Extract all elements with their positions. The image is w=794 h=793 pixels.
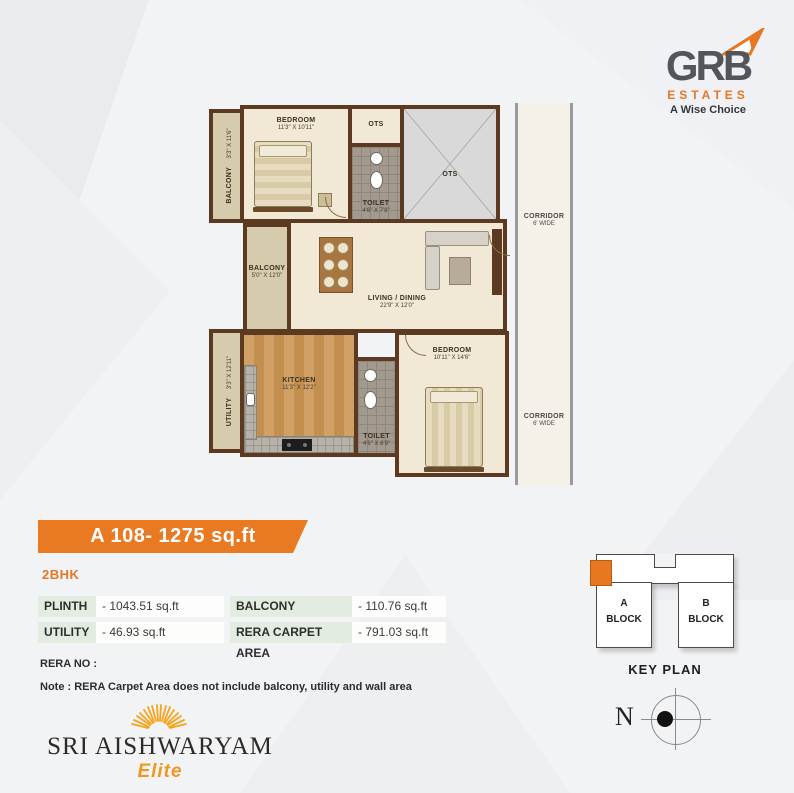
block-letter: B — [678, 596, 734, 612]
bed-icon — [254, 141, 312, 207]
brand-sub: ESTATES — [648, 88, 768, 102]
table-value: - 46.93 sq.ft — [96, 622, 224, 643]
room-living-dining: LIVING / DINING 22'9" X 12'0" — [287, 219, 507, 333]
room-label: TOILET 4'6" X 7'8" — [352, 200, 400, 214]
brand-tagline: A Wise Choice — [648, 104, 768, 116]
project-logo: SRI AISHWARYAM Elite — [35, 703, 285, 787]
shaft-cross-icon — [404, 109, 496, 219]
pillow-icon — [430, 391, 478, 403]
table-label: RERA CARPET AREA — [230, 622, 352, 643]
toilet-wc-icon — [370, 171, 383, 189]
room-bedroom-2: BEDROOM 10'11" X 14'6" — [395, 331, 509, 477]
sofa-icon — [425, 246, 440, 290]
table-value: - 110.76 sq.ft — [352, 596, 446, 617]
room-label: BALCONY 3'3" X 11'6" — [218, 128, 236, 203]
sink-icon — [370, 152, 383, 165]
project-edition: Elite — [35, 761, 285, 783]
bed-foot-icon — [424, 467, 484, 472]
room-corridor: CORRIDOR 6' WIDE CORRIDOR 6' WIDE — [515, 103, 573, 485]
table-value: - 1043.51 sq.ft — [96, 596, 224, 617]
room-utility: UTILITY 3'3" X 12'11" — [209, 329, 244, 453]
floor-plan: BALCONY 3'3" X 11'6" BEDROOM 11'3" X 10'… — [175, 85, 620, 495]
room-toilet-2: TOILET 4'6" X 8'9" — [354, 357, 399, 457]
keyplan-block-b-label: B BLOCK — [678, 596, 734, 628]
compass: N — [615, 692, 725, 756]
pillow-icon — [259, 145, 307, 157]
compass-dot-icon — [657, 711, 673, 727]
room-label: BALCONY 5'0" X 12'0" — [247, 265, 287, 279]
table-label: PLINTH — [38, 596, 96, 617]
room-label: LIVING / DINING 22'9" X 12'0" — [291, 295, 503, 309]
room-ots-small: OTS — [348, 105, 404, 147]
coffee-table-icon — [449, 257, 471, 285]
room-toilet-1: TOILET 4'6" X 7'8" — [348, 143, 404, 223]
chair-icon — [323, 276, 335, 288]
table-label: BALCONY — [230, 596, 352, 617]
room-label: BEDROOM 11'3" X 10'11" — [244, 117, 348, 131]
north-label: N — [615, 702, 634, 732]
table-value: - 791.03 sq.ft — [352, 622, 446, 643]
chair-icon — [337, 242, 349, 254]
chair-icon — [337, 259, 349, 271]
brand-name: GRB — [648, 42, 768, 90]
room-label: UTILITY 3'3" X 12'11" — [218, 356, 236, 426]
sunburst-icon — [128, 703, 192, 731]
chair-icon — [337, 276, 349, 288]
chair-icon — [323, 259, 335, 271]
bed-foot-icon — [253, 207, 313, 212]
keyplan-block-a-label: A BLOCK — [596, 596, 652, 628]
block-letter: A — [596, 596, 652, 612]
room-label: CORRIDOR 6' WIDE — [518, 413, 570, 427]
dining-table-icon — [319, 237, 353, 293]
block-word: BLOCK — [596, 612, 652, 628]
unit-banner-text: A 108- 1275 sq.ft — [38, 520, 308, 553]
table-label: UTILITY — [38, 622, 96, 643]
room-label: CORRIDOR 6' WIDE — [518, 213, 570, 227]
room-label: OTS — [352, 121, 400, 128]
stove-icon — [282, 439, 312, 451]
toilet-wc-icon — [364, 391, 377, 409]
poster: BALCONY 3'3" X 11'6" BEDROOM 11'3" X 10'… — [0, 0, 794, 793]
chair-icon — [323, 242, 335, 254]
note-text: Note : RERA Carpet Area does not include… — [40, 681, 412, 693]
room-balcony-2: BALCONY 5'0" X 12'0" — [243, 223, 291, 333]
block-word: BLOCK — [678, 612, 734, 628]
keyplan-title: KEY PLAN — [588, 662, 742, 677]
unit-banner: A 108- 1275 sq.ft — [38, 520, 308, 553]
room-label: OTS — [404, 171, 496, 178]
room-kitchen: KITCHEN 11'3" X 12'2" — [240, 331, 358, 457]
kitchen-sink-icon — [246, 393, 255, 406]
area-table: PLINTH - 1043.51 sq.ft BALCONY - 110.76 … — [38, 596, 446, 643]
room-label: KITCHEN 11'3" X 12'2" — [244, 377, 354, 391]
room-label: BEDROOM 10'11" X 14'6" — [399, 347, 505, 361]
room-balcony-1: BALCONY 3'3" X 11'6" — [209, 109, 244, 223]
burner-icon — [303, 443, 307, 447]
background-triangle — [0, 120, 170, 500]
room-ots-shaft: OTS — [400, 105, 500, 223]
sofa-icon — [425, 231, 489, 246]
room-label: TOILET 4'6" X 8'9" — [358, 433, 395, 447]
project-name: SRI AISHWARYAM — [35, 733, 285, 761]
unit-type-label: 2BHK — [42, 567, 79, 582]
keyplan-highlighted-unit — [590, 560, 612, 586]
keyplan-notch — [654, 554, 676, 568]
key-plan: A BLOCK B BLOCK KEY PLAN — [588, 548, 742, 688]
background-triangle — [240, 555, 570, 793]
bed-icon — [425, 387, 483, 467]
rera-no-label: RERA NO : — [40, 658, 97, 670]
burner-icon — [287, 443, 291, 447]
sink-icon — [364, 369, 377, 382]
brand-logo: GRB ESTATES A Wise Choice — [648, 28, 768, 120]
